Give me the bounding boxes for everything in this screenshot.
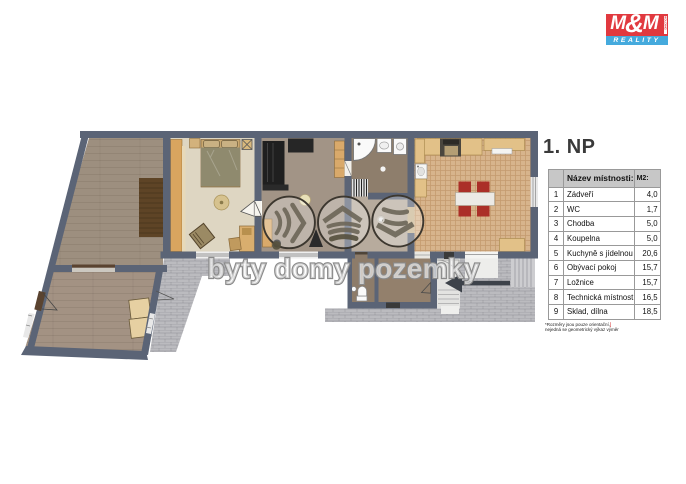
- svg-text:byty domy pozemky: byty domy pozemky: [208, 253, 480, 284]
